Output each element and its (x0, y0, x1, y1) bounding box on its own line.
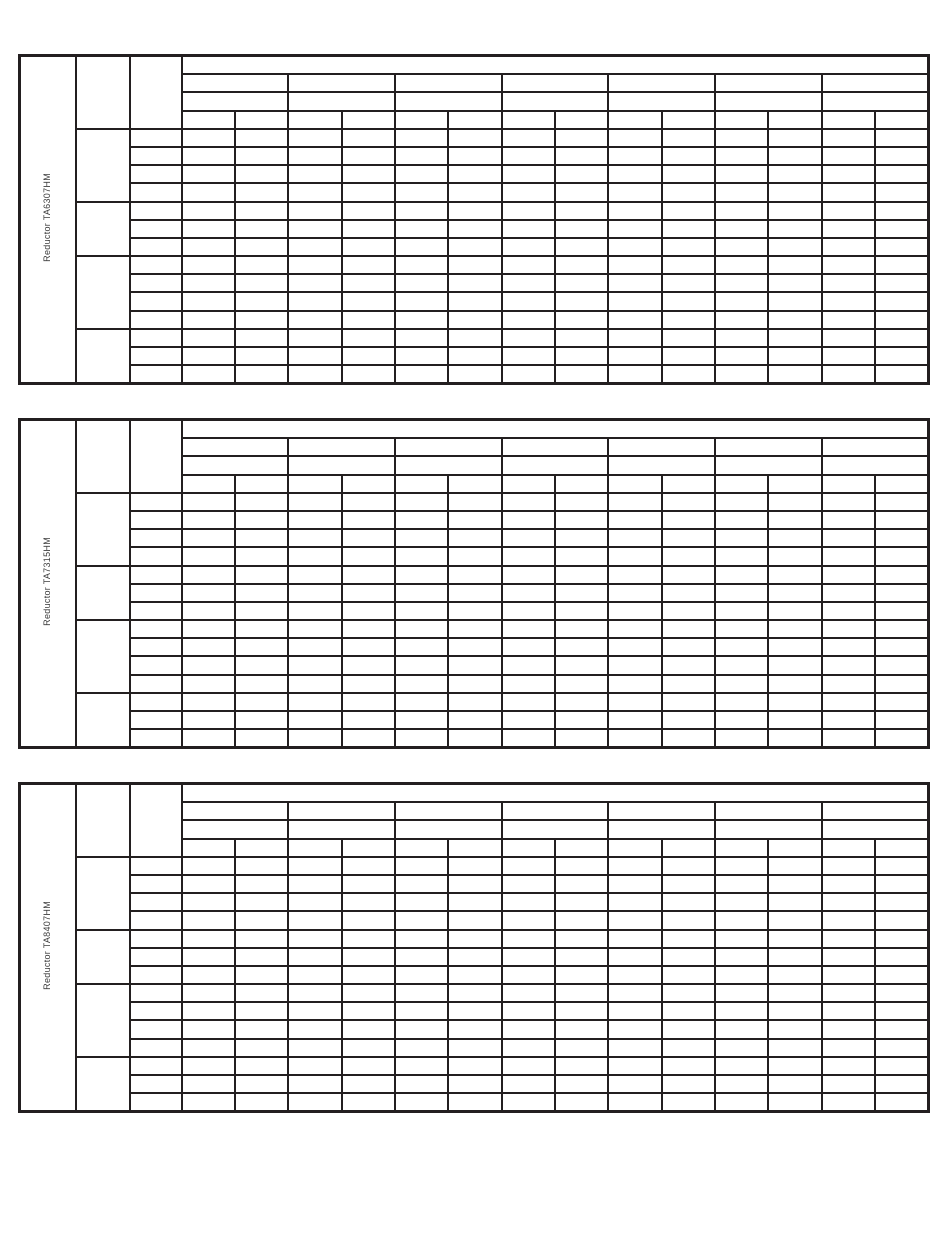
data-cell (608, 129, 661, 147)
data-cell (768, 365, 821, 384)
data-cell (288, 693, 341, 711)
data-cell (875, 129, 929, 147)
data-cell (448, 1039, 501, 1057)
data-cell (822, 529, 875, 547)
data-cell (182, 329, 235, 347)
group-cell (76, 129, 130, 202)
data-cell (235, 675, 288, 693)
data-cell (502, 656, 555, 674)
header-pair-cell (822, 74, 929, 92)
data-cell (822, 693, 875, 711)
header-column-cell (875, 111, 929, 129)
row-label-cell (130, 693, 182, 711)
data-cell (662, 347, 715, 365)
row-label-cell (130, 911, 182, 929)
row-label-cell (130, 220, 182, 238)
data-cell (715, 202, 768, 220)
data-cell (715, 220, 768, 238)
data-cell (715, 183, 768, 201)
data-cell (555, 292, 608, 310)
data-cell (662, 984, 715, 1002)
data-cell (288, 566, 341, 584)
data-cell (502, 1039, 555, 1057)
data-cell (288, 675, 341, 693)
data-cell (448, 256, 501, 274)
data-cell (822, 1093, 875, 1112)
data-cell (342, 365, 395, 384)
data-cell (395, 529, 448, 547)
data-cell (822, 220, 875, 238)
header-pair-cell (288, 92, 395, 110)
data-cell (395, 238, 448, 256)
data-cell (662, 675, 715, 693)
data-cell (395, 875, 448, 893)
data-cell (662, 1093, 715, 1112)
data-cell (288, 656, 341, 674)
data-cell (342, 893, 395, 911)
data-cell (875, 602, 929, 620)
data-cell (342, 729, 395, 748)
data-cell (235, 365, 288, 384)
data-cell (342, 566, 395, 584)
row-label-cell (130, 966, 182, 984)
data-cell (608, 966, 661, 984)
data-cell (608, 238, 661, 256)
data-cell (715, 292, 768, 310)
data-cell (288, 857, 341, 875)
data-cell (662, 183, 715, 201)
header-column-cell (662, 475, 715, 493)
data-cell (875, 274, 929, 292)
data-cell (715, 620, 768, 638)
data-cell (768, 875, 821, 893)
data-cell (875, 1039, 929, 1057)
header-column-cell (875, 839, 929, 857)
data-cell (822, 256, 875, 274)
header-pair-cell (395, 802, 502, 820)
data-cell (608, 566, 661, 584)
data-cell (235, 893, 288, 911)
data-cell (288, 638, 341, 656)
header-pair-cell (715, 820, 822, 838)
data-cell (235, 620, 288, 638)
data-cell (395, 893, 448, 911)
data-cell (342, 675, 395, 693)
data-cell (608, 529, 661, 547)
data-cell (342, 1002, 395, 1020)
row-label-cell (130, 1039, 182, 1057)
data-cell (875, 220, 929, 238)
data-cell (235, 311, 288, 329)
data-cell (555, 183, 608, 201)
header-column-cell (502, 839, 555, 857)
data-cell (768, 693, 821, 711)
data-cell (448, 1020, 501, 1038)
data-cell (235, 930, 288, 948)
data-cell (182, 984, 235, 1002)
data-cell (288, 292, 341, 310)
data-cell (768, 547, 821, 565)
group-cell (76, 202, 130, 257)
data-cell (768, 238, 821, 256)
data-cell (715, 1020, 768, 1038)
data-cell (448, 857, 501, 875)
header-pair-cell (182, 456, 289, 474)
data-cell (342, 238, 395, 256)
data-cell (235, 711, 288, 729)
data-cell (822, 274, 875, 292)
data-cell (822, 966, 875, 984)
data-cell (448, 638, 501, 656)
data-cell (768, 948, 821, 966)
data-cell (608, 202, 661, 220)
data-cell (342, 202, 395, 220)
data-cell (342, 274, 395, 292)
data-cell (288, 729, 341, 748)
row-label-cell (130, 729, 182, 748)
data-cell (608, 274, 661, 292)
data-cell (235, 329, 288, 347)
data-cell (395, 256, 448, 274)
data-cell (555, 948, 608, 966)
data-cell (715, 329, 768, 347)
data-cell (395, 620, 448, 638)
data-cell (395, 493, 448, 511)
data-cell (235, 183, 288, 201)
data-cell (235, 602, 288, 620)
data-cell (608, 911, 661, 929)
data-cell (342, 875, 395, 893)
data-cell (395, 675, 448, 693)
data-cell (448, 529, 501, 547)
header-column-cell (235, 111, 288, 129)
data-cell (608, 875, 661, 893)
header-column-cell (822, 475, 875, 493)
header-pair-cell (502, 802, 609, 820)
data-cell (502, 147, 555, 165)
data-cell (182, 566, 235, 584)
header-title-cell (182, 56, 929, 75)
data-cell (395, 1039, 448, 1057)
data-cell (768, 529, 821, 547)
data-cell (608, 511, 661, 529)
data-cell (288, 602, 341, 620)
data-cell (875, 529, 929, 547)
data-cell (715, 1057, 768, 1075)
header-title-cell (182, 784, 929, 803)
data-cell (502, 911, 555, 929)
data-cell (502, 638, 555, 656)
reductor-table: Reductor TA8407HM (18, 782, 930, 1113)
header-pair-cell (502, 456, 609, 474)
header-pair-cell (182, 820, 289, 838)
data-cell (822, 566, 875, 584)
data-cell (555, 1020, 608, 1038)
group-cell (76, 256, 130, 329)
data-cell (288, 238, 341, 256)
data-cell (715, 165, 768, 183)
data-cell (768, 147, 821, 165)
data-cell (768, 1075, 821, 1093)
data-cell (555, 729, 608, 748)
data-cell (448, 966, 501, 984)
data-cell (395, 638, 448, 656)
data-cell (395, 948, 448, 966)
row-label-cell (130, 711, 182, 729)
group-cell (76, 1057, 130, 1112)
data-cell (555, 365, 608, 384)
header-pair-cell (502, 74, 609, 92)
data-cell (608, 329, 661, 347)
data-cell (502, 365, 555, 384)
data-cell (235, 147, 288, 165)
row-label-cell (130, 493, 182, 511)
header-pair-cell (288, 820, 395, 838)
data-cell (768, 984, 821, 1002)
data-cell (822, 202, 875, 220)
data-cell (182, 365, 235, 384)
row-label-cell (130, 1057, 182, 1075)
data-cell (395, 365, 448, 384)
row-label-cell (130, 165, 182, 183)
data-cell (395, 1002, 448, 1020)
data-cell (395, 966, 448, 984)
data-cell (608, 1057, 661, 1075)
data-cell (342, 584, 395, 602)
data-cell (662, 930, 715, 948)
data-cell (875, 693, 929, 711)
data-cell (555, 220, 608, 238)
data-cell (822, 584, 875, 602)
data-cell (182, 966, 235, 984)
header-pair-cell (288, 74, 395, 92)
data-cell (555, 1093, 608, 1112)
header-pair-cell (288, 456, 395, 474)
data-cell (662, 1039, 715, 1057)
row-label-cell (130, 875, 182, 893)
data-cell (875, 511, 929, 529)
data-cell (288, 893, 341, 911)
data-cell (768, 1093, 821, 1112)
header-pair-cell (608, 92, 715, 110)
data-cell (662, 966, 715, 984)
data-cell (182, 147, 235, 165)
data-cell (448, 147, 501, 165)
data-cell (502, 238, 555, 256)
group-cell (76, 329, 130, 384)
header-column-cell (715, 839, 768, 857)
data-cell (555, 1002, 608, 1020)
data-cell (235, 911, 288, 929)
data-cell (608, 675, 661, 693)
data-cell (662, 529, 715, 547)
header-pair-cell (822, 820, 929, 838)
reductor-table: Reductor TA6307HM (18, 54, 930, 385)
data-cell (502, 711, 555, 729)
data-cell (395, 656, 448, 674)
data-cell (875, 202, 929, 220)
data-cell (662, 147, 715, 165)
data-cell (448, 511, 501, 529)
data-cell (608, 893, 661, 911)
header-column-cell (342, 111, 395, 129)
data-cell (555, 638, 608, 656)
data-cell (448, 893, 501, 911)
data-cell (555, 238, 608, 256)
data-cell (715, 857, 768, 875)
header-column-cell (555, 839, 608, 857)
data-cell (182, 875, 235, 893)
data-cell (395, 693, 448, 711)
data-cell (182, 675, 235, 693)
data-cell (768, 656, 821, 674)
data-cell (555, 1039, 608, 1057)
data-cell (875, 984, 929, 1002)
data-cell (342, 911, 395, 929)
data-cell (662, 547, 715, 565)
data-cell (235, 292, 288, 310)
data-cell (288, 930, 341, 948)
header-pair-cell (822, 438, 929, 456)
data-cell (875, 256, 929, 274)
data-cell (555, 656, 608, 674)
data-cell (768, 930, 821, 948)
data-cell (768, 292, 821, 310)
header-column-cell (395, 475, 448, 493)
data-cell (715, 511, 768, 529)
data-cell (235, 638, 288, 656)
data-cell (715, 129, 768, 147)
data-cell (182, 930, 235, 948)
data-cell (768, 911, 821, 929)
data-cell (715, 311, 768, 329)
header-column-cell (395, 111, 448, 129)
data-cell (608, 930, 661, 948)
data-cell (822, 638, 875, 656)
group-cell (76, 693, 130, 748)
data-cell (822, 620, 875, 638)
data-cell (768, 1002, 821, 1020)
row-label-cell (130, 584, 182, 602)
data-cell (875, 620, 929, 638)
data-cell (555, 857, 608, 875)
header-pair-cell (288, 438, 395, 456)
data-cell (502, 620, 555, 638)
data-cell (502, 1002, 555, 1020)
data-cell (182, 584, 235, 602)
data-cell (502, 311, 555, 329)
data-cell (342, 329, 395, 347)
data-cell (182, 165, 235, 183)
data-cell (662, 1002, 715, 1020)
data-cell (288, 1002, 341, 1020)
header-column-cell (448, 839, 501, 857)
data-cell (662, 566, 715, 584)
data-cell (182, 1002, 235, 1020)
data-cell (768, 711, 821, 729)
data-cell (448, 911, 501, 929)
data-cell (342, 129, 395, 147)
header-column-cell (235, 475, 288, 493)
data-cell (608, 347, 661, 365)
data-cell (662, 165, 715, 183)
data-cell (715, 875, 768, 893)
data-cell (288, 1075, 341, 1093)
data-cell (182, 711, 235, 729)
data-cell (502, 857, 555, 875)
data-cell (555, 493, 608, 511)
data-cell (502, 529, 555, 547)
data-cell (342, 1020, 395, 1038)
data-cell (715, 493, 768, 511)
data-cell (822, 911, 875, 929)
data-cell (342, 602, 395, 620)
row-label-cell (130, 948, 182, 966)
data-cell (342, 220, 395, 238)
header-column-cell (555, 475, 608, 493)
data-cell (662, 493, 715, 511)
data-cell (342, 1075, 395, 1093)
data-cell (502, 1075, 555, 1093)
data-cell (182, 1020, 235, 1038)
data-cell (502, 183, 555, 201)
data-cell (608, 602, 661, 620)
row-label-cell (130, 511, 182, 529)
data-cell (608, 292, 661, 310)
data-cell (235, 948, 288, 966)
data-cell (288, 1093, 341, 1112)
data-cell (288, 256, 341, 274)
data-cell (822, 857, 875, 875)
data-cell (342, 165, 395, 183)
data-cell (608, 620, 661, 638)
data-cell (235, 511, 288, 529)
data-cell (182, 656, 235, 674)
data-cell (448, 493, 501, 511)
data-cell (182, 729, 235, 748)
data-cell (182, 256, 235, 274)
data-cell (395, 1075, 448, 1093)
data-cell (875, 1057, 929, 1075)
header-pair-cell (395, 74, 502, 92)
data-cell (342, 638, 395, 656)
data-cell (288, 365, 341, 384)
data-cell (662, 274, 715, 292)
data-cell (715, 274, 768, 292)
group-cell (76, 493, 130, 566)
data-cell (875, 638, 929, 656)
data-cell (555, 584, 608, 602)
data-cell (768, 620, 821, 638)
data-cell (448, 202, 501, 220)
data-cell (182, 511, 235, 529)
data-cell (182, 493, 235, 511)
row-label-cell (130, 529, 182, 547)
row-label-cell (130, 129, 182, 147)
data-cell (822, 238, 875, 256)
data-cell (448, 365, 501, 384)
data-cell (288, 911, 341, 929)
data-cell (235, 566, 288, 584)
data-cell (822, 147, 875, 165)
data-cell (235, 1057, 288, 1075)
data-cell (502, 966, 555, 984)
header-column-cell (822, 111, 875, 129)
data-cell (875, 547, 929, 565)
data-cell (715, 147, 768, 165)
data-cell (768, 893, 821, 911)
data-cell (768, 729, 821, 748)
